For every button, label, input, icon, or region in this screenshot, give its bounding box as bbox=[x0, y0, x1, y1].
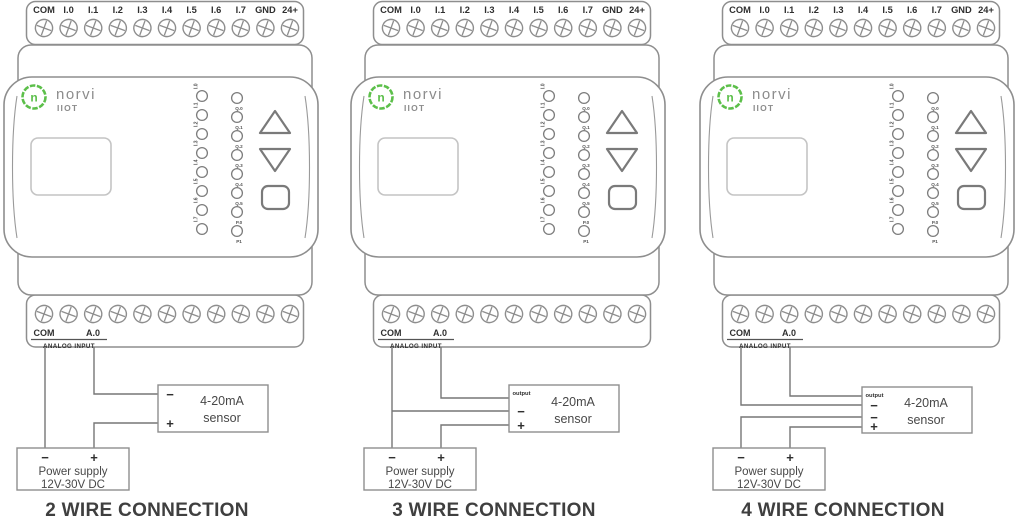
output-led-label: Q.2 bbox=[582, 144, 590, 149]
wiring-diagram-2-wire: COMI.0I.1I.2I.3I.4I.5I.6I.7GND24+COMA.0A… bbox=[1, 0, 342, 526]
output-led-icon bbox=[579, 169, 590, 180]
front-panel: nnorviIIOTI.0I.1I.2I.3I.4I.5I.6I.7Q.0Q.1… bbox=[351, 77, 665, 257]
power-plus-label: + bbox=[90, 450, 98, 465]
input-led-icon bbox=[197, 186, 208, 197]
input-led-label: I.6 bbox=[541, 197, 547, 203]
sensor-terminal-label: − bbox=[166, 387, 174, 402]
top-terminal-label: I.3 bbox=[833, 5, 843, 15]
front-panel: nnorviIIOTI.0I.1I.2I.3I.4I.5I.6I.7Q.0Q.1… bbox=[4, 77, 318, 257]
top-terminal-label: I.6 bbox=[558, 5, 568, 15]
sensor-name-line1: 4-20mA bbox=[551, 395, 595, 409]
top-terminal-label: 24+ bbox=[978, 5, 994, 15]
wires bbox=[741, 347, 862, 448]
diagram-title-3-wire: 3 WIRE CONNECTION bbox=[348, 500, 640, 522]
sensor-terminal-label: + bbox=[517, 418, 525, 433]
top-terminal-label: I.7 bbox=[932, 5, 942, 15]
output-led-label: Q.5 bbox=[931, 201, 939, 206]
input-led-icon bbox=[197, 129, 208, 140]
top-terminal-label: GND bbox=[255, 5, 276, 15]
top-terminal-label: I.4 bbox=[509, 5, 520, 15]
input-led-icon bbox=[197, 110, 208, 121]
power-name-line1: Power supply bbox=[385, 466, 454, 478]
output-led-label: P1 bbox=[236, 239, 242, 244]
analog-com-label: COM bbox=[730, 328, 751, 338]
svg-text:n: n bbox=[726, 91, 733, 105]
input-led-icon bbox=[197, 224, 208, 235]
output-led-label: Q.5 bbox=[582, 201, 590, 206]
input-led-icon bbox=[893, 148, 904, 159]
input-led-label: I.5 bbox=[194, 178, 200, 184]
sensor-terminal-label: + bbox=[166, 416, 174, 431]
top-terminal-label: 24+ bbox=[629, 5, 645, 15]
diagram-panel-4-wire: COMI.0I.1I.2I.3I.4I.5I.6I.7GND24+COMA.0A… bbox=[697, 0, 1024, 526]
input-led-icon bbox=[197, 167, 208, 178]
input-led-label: I.0 bbox=[194, 83, 200, 89]
analog-input-label: ANALOG INPUT bbox=[390, 343, 442, 350]
output-led-icon bbox=[928, 226, 939, 237]
wire bbox=[94, 423, 158, 448]
input-led-icon bbox=[544, 224, 555, 235]
input-led-icon bbox=[544, 148, 555, 159]
input-led-icon bbox=[893, 205, 904, 216]
power-name-line2: 12V-30V DC bbox=[41, 479, 105, 491]
input-led-icon bbox=[544, 129, 555, 140]
sensor-name-line1: 4-20mA bbox=[200, 394, 244, 408]
input-led-icon bbox=[544, 167, 555, 178]
output-led-label: Q.2 bbox=[235, 144, 243, 149]
wire bbox=[441, 425, 509, 448]
output-led-label: Q.3 bbox=[582, 163, 590, 168]
analog-input-label: ANALOG INPUT bbox=[739, 343, 791, 350]
brand-model: IIOT bbox=[753, 103, 774, 113]
output-led-icon bbox=[579, 226, 590, 237]
display-screen bbox=[31, 138, 111, 195]
power-name-line1: Power supply bbox=[38, 466, 107, 478]
sensor-terminal-label: output bbox=[513, 391, 531, 397]
output-led-icon bbox=[928, 112, 939, 123]
output-led-label: Q.4 bbox=[582, 182, 590, 187]
input-led-label: I.0 bbox=[890, 83, 896, 89]
top-terminal-label: I.1 bbox=[88, 5, 98, 15]
output-led-label: Q.0 bbox=[582, 106, 590, 111]
top-terminal-label: COM bbox=[380, 5, 402, 15]
output-led-icon bbox=[579, 207, 590, 218]
sensor-name-line2: sensor bbox=[203, 411, 241, 425]
output-led-icon bbox=[928, 188, 939, 199]
power-minus-label: − bbox=[737, 450, 745, 465]
input-led-icon bbox=[893, 224, 904, 235]
output-led-label: Q.3 bbox=[931, 163, 939, 168]
top-terminal-label: I.1 bbox=[784, 5, 794, 15]
output-led-icon bbox=[928, 207, 939, 218]
top-terminal-label: I.6 bbox=[211, 5, 221, 15]
top-terminal-label: I.5 bbox=[882, 5, 892, 15]
analog-a0-label: A.0 bbox=[86, 328, 100, 338]
input-led-label: I.1 bbox=[890, 102, 896, 108]
top-terminal-label: COM bbox=[33, 5, 55, 15]
output-led-icon bbox=[232, 93, 243, 104]
top-terminal-label: I.5 bbox=[533, 5, 543, 15]
wire bbox=[441, 347, 509, 398]
brand-model: IIOT bbox=[404, 103, 425, 113]
brand-name: norvi bbox=[403, 86, 443, 103]
output-led-icon bbox=[232, 150, 243, 161]
display-screen bbox=[378, 138, 458, 195]
bottom-terminal-block: COMA.0ANALOG INPUT bbox=[27, 295, 304, 350]
output-led-label: Q.3 bbox=[235, 163, 243, 168]
top-terminal-label: GND bbox=[951, 5, 972, 15]
output-led-label: P.0 bbox=[932, 220, 939, 225]
wires bbox=[392, 347, 509, 448]
output-led-label: P1 bbox=[932, 239, 938, 244]
input-led-label: I.5 bbox=[541, 178, 547, 184]
top-terminal-label: I.5 bbox=[186, 5, 196, 15]
power-minus-label: − bbox=[388, 450, 396, 465]
power-supply-box: −+Power supply12V-30V DC bbox=[17, 448, 129, 491]
input-led-icon bbox=[893, 167, 904, 178]
top-terminal-label: I.6 bbox=[907, 5, 917, 15]
top-terminal-label: I.0 bbox=[63, 5, 73, 15]
input-led-icon bbox=[893, 110, 904, 121]
input-led-label: I.3 bbox=[194, 140, 200, 146]
output-led-label: Q.0 bbox=[931, 106, 939, 111]
wiring-diagram-3-wire: COMI.0I.1I.2I.3I.4I.5I.6I.7GND24+COMA.0A… bbox=[348, 0, 689, 526]
power-minus-label: − bbox=[41, 450, 49, 465]
output-led-icon bbox=[928, 131, 939, 142]
brand-model: IIOT bbox=[57, 103, 78, 113]
output-led-icon bbox=[579, 188, 590, 199]
input-led-label: I.7 bbox=[541, 216, 547, 222]
wire bbox=[94, 347, 158, 394]
input-led-label: I.2 bbox=[541, 121, 547, 127]
top-terminal-block: COMI.0I.1I.2I.3I.4I.5I.6I.7GND24+ bbox=[723, 2, 1000, 45]
output-led-label: Q.1 bbox=[582, 125, 590, 130]
top-terminal-label: I.2 bbox=[460, 5, 470, 15]
output-led-label: Q.1 bbox=[931, 125, 939, 130]
output-led-label: Q.5 bbox=[235, 201, 243, 206]
output-led-icon bbox=[232, 169, 243, 180]
output-led-icon bbox=[928, 93, 939, 104]
input-led-label: I.0 bbox=[541, 83, 547, 89]
input-led-label: I.7 bbox=[890, 216, 896, 222]
sensor-box: output−+4-20mAsensor bbox=[509, 385, 619, 433]
output-led-icon bbox=[232, 188, 243, 199]
input-led-label: I.3 bbox=[890, 140, 896, 146]
sensor-box: output−−+4-20mAsensor bbox=[862, 387, 972, 434]
top-terminal-label: I.0 bbox=[410, 5, 420, 15]
top-terminal-label: COM bbox=[729, 5, 751, 15]
input-led-icon bbox=[893, 186, 904, 197]
output-led-icon bbox=[579, 93, 590, 104]
output-led-label: P1 bbox=[583, 239, 589, 244]
power-supply-box: −+Power supply12V-30V DC bbox=[364, 448, 476, 491]
top-terminal-label: GND bbox=[602, 5, 623, 15]
wiring-diagram-4-wire: COMI.0I.1I.2I.3I.4I.5I.6I.7GND24+COMA.0A… bbox=[697, 0, 1024, 526]
sensor-terminal-label: + bbox=[870, 419, 878, 434]
top-terminal-label: I.7 bbox=[583, 5, 593, 15]
input-led-label: I.3 bbox=[541, 140, 547, 146]
output-led-icon bbox=[232, 112, 243, 123]
output-led-label: P.0 bbox=[236, 220, 243, 225]
input-led-label: I.4 bbox=[541, 159, 547, 165]
input-led-label: I.1 bbox=[541, 102, 547, 108]
sensor-name-line1: 4-20mA bbox=[904, 396, 948, 410]
wire bbox=[741, 417, 862, 448]
power-plus-label: + bbox=[437, 450, 445, 465]
input-led-label: I.1 bbox=[194, 102, 200, 108]
input-led-icon bbox=[544, 205, 555, 216]
wire bbox=[790, 347, 862, 396]
brand-name: norvi bbox=[752, 86, 792, 103]
top-terminal-label: I.0 bbox=[759, 5, 769, 15]
input-led-label: I.4 bbox=[194, 159, 200, 165]
input-led-label: I.5 bbox=[890, 178, 896, 184]
top-terminal-label: I.4 bbox=[162, 5, 173, 15]
top-terminal-label: I.2 bbox=[113, 5, 123, 15]
sensor-name-line2: sensor bbox=[554, 412, 592, 426]
wires bbox=[45, 347, 158, 448]
power-plus-label: + bbox=[786, 450, 794, 465]
front-panel: nnorviIIOTI.0I.1I.2I.3I.4I.5I.6I.7Q.0Q.1… bbox=[700, 77, 1014, 257]
input-led-label: I.2 bbox=[890, 121, 896, 127]
input-led-label: I.6 bbox=[890, 197, 896, 203]
output-led-label: Q.4 bbox=[235, 182, 243, 187]
input-led-icon bbox=[197, 205, 208, 216]
diagram-title-4-wire: 4 WIRE CONNECTION bbox=[697, 500, 989, 522]
input-led-icon bbox=[197, 148, 208, 159]
sensor-terminal-label: − bbox=[517, 404, 525, 419]
output-led-icon bbox=[579, 112, 590, 123]
output-led-icon bbox=[232, 207, 243, 218]
brand-name: norvi bbox=[56, 86, 96, 103]
output-led-icon bbox=[579, 131, 590, 142]
analog-a0-label: A.0 bbox=[433, 328, 447, 338]
analog-input-label: ANALOG INPUT bbox=[43, 343, 95, 350]
top-terminal-block: COMI.0I.1I.2I.3I.4I.5I.6I.7GND24+ bbox=[374, 2, 651, 45]
analog-a0-label: A.0 bbox=[782, 328, 796, 338]
top-terminal-label: I.3 bbox=[137, 5, 147, 15]
svg-text:n: n bbox=[377, 91, 384, 105]
top-terminal-label: I.3 bbox=[484, 5, 494, 15]
top-terminal-label: I.1 bbox=[435, 5, 445, 15]
input-led-label: I.7 bbox=[194, 216, 200, 222]
output-led-icon bbox=[232, 226, 243, 237]
input-led-label: I.4 bbox=[890, 159, 896, 165]
input-led-icon bbox=[544, 110, 555, 121]
power-name-line2: 12V-30V DC bbox=[737, 479, 801, 491]
sensor-box: −+4-20mAsensor bbox=[158, 385, 268, 432]
input-led-icon bbox=[544, 91, 555, 102]
input-led-icon bbox=[893, 129, 904, 140]
input-led-icon bbox=[544, 186, 555, 197]
output-led-icon bbox=[928, 150, 939, 161]
top-terminal-label: I.2 bbox=[809, 5, 819, 15]
wire bbox=[790, 427, 862, 448]
top-terminal-label: I.7 bbox=[236, 5, 246, 15]
diagram-panel-3-wire: COMI.0I.1I.2I.3I.4I.5I.6I.7GND24+COMA.0A… bbox=[348, 0, 689, 526]
top-terminal-block: COMI.0I.1I.2I.3I.4I.5I.6I.7GND24+ bbox=[27, 2, 304, 45]
power-name-line2: 12V-30V DC bbox=[388, 479, 452, 491]
output-led-label: Q.4 bbox=[931, 182, 939, 187]
diagram-title-2-wire: 2 WIRE CONNECTION bbox=[1, 500, 293, 522]
output-led-label: Q.0 bbox=[235, 106, 243, 111]
output-led-label: Q.2 bbox=[931, 144, 939, 149]
input-led-label: I.6 bbox=[194, 197, 200, 203]
bottom-terminal-block: COMA.0ANALOG INPUT bbox=[374, 295, 651, 350]
input-led-icon bbox=[893, 91, 904, 102]
output-led-label: Q.1 bbox=[235, 125, 243, 130]
analog-com-label: COM bbox=[34, 328, 55, 338]
analog-com-label: COM bbox=[381, 328, 402, 338]
diagram-panel-2-wire: COMI.0I.1I.2I.3I.4I.5I.6I.7GND24+COMA.0A… bbox=[1, 0, 342, 526]
input-led-icon bbox=[197, 91, 208, 102]
power-name-line1: Power supply bbox=[734, 466, 803, 478]
wiring-diagrams-page: COMI.0I.1I.2I.3I.4I.5I.6I.7GND24+COMA.0A… bbox=[0, 0, 1024, 526]
bottom-terminal-block: COMA.0ANALOG INPUT bbox=[723, 295, 1000, 350]
top-terminal-label: 24+ bbox=[282, 5, 298, 15]
sensor-name-line2: sensor bbox=[907, 413, 945, 427]
power-supply-box: −+Power supply12V-30V DC bbox=[713, 448, 825, 491]
output-led-icon bbox=[579, 150, 590, 161]
output-led-icon bbox=[928, 169, 939, 180]
display-screen bbox=[727, 138, 807, 195]
input-led-label: I.2 bbox=[194, 121, 200, 127]
svg-text:n: n bbox=[30, 91, 37, 105]
output-led-label: P.0 bbox=[583, 220, 590, 225]
output-led-icon bbox=[232, 131, 243, 142]
top-terminal-label: I.4 bbox=[858, 5, 869, 15]
